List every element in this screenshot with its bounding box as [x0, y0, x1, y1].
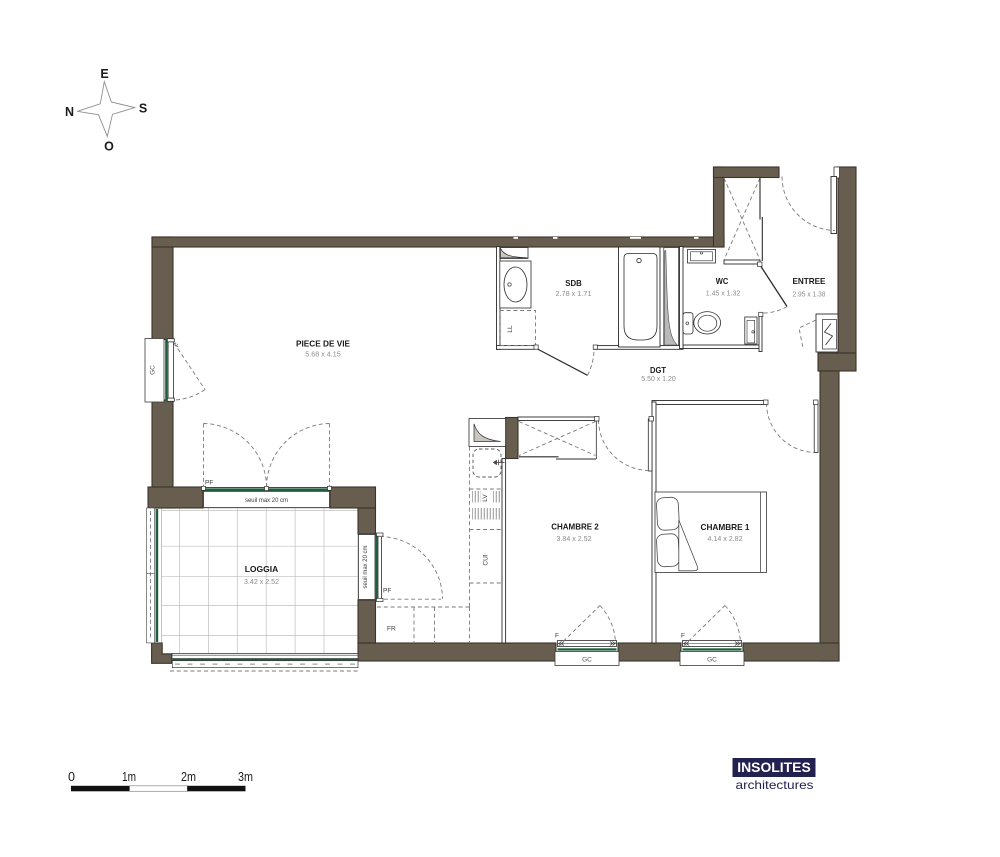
svg-text:INSOLITES: INSOLITES [737, 759, 811, 775]
svg-text:1.45 x 1.32: 1.45 x 1.32 [706, 291, 741, 298]
svg-text:3.42 x 2.52: 3.42 x 2.52 [244, 579, 279, 586]
svg-text:GC: GC [582, 657, 592, 664]
svg-text:PF: PF [205, 480, 213, 487]
svg-text:2.95 x 1.38: 2.95 x 1.38 [793, 292, 826, 299]
svg-text:CHAMBRE 2: CHAMBRE 2 [551, 522, 599, 532]
svg-text:GC: GC [707, 657, 717, 664]
svg-text:PF: PF [383, 588, 391, 595]
svg-text:FR: FR [387, 626, 396, 633]
svg-text:seuil max 20 cm: seuil max 20 cm [245, 497, 288, 504]
svg-text:LL: LL [507, 325, 514, 333]
svg-text:F: F [555, 633, 559, 640]
svg-text:3m: 3m [238, 770, 253, 784]
svg-text:3.84 x 2.52: 3.84 x 2.52 [557, 536, 592, 543]
svg-text:2.78 x 1.71: 2.78 x 1.71 [556, 291, 592, 298]
svg-text:O: O [104, 140, 114, 154]
svg-text:SDB: SDB [565, 278, 582, 288]
svg-text:4.14 x 2.82: 4.14 x 2.82 [708, 536, 743, 543]
svg-text:CHAMBRE 1: CHAMBRE 1 [701, 522, 750, 532]
svg-text:0: 0 [68, 770, 75, 784]
svg-text:1m: 1m [122, 770, 136, 784]
svg-text:E: E [100, 67, 108, 81]
svg-text:LV: LV [482, 494, 489, 502]
svg-text:LOGGIA: LOGGIA [245, 564, 279, 574]
svg-text:GC: GC [150, 365, 157, 375]
svg-text:seuil max 20 cm: seuil max 20 cm [362, 546, 369, 589]
svg-text:architectures: architectures [736, 778, 814, 792]
svg-text:DGT: DGT [650, 365, 667, 375]
svg-text:F: F [681, 633, 685, 640]
svg-text:WC: WC [716, 276, 729, 286]
svg-text:CUI: CUI [483, 554, 490, 565]
svg-text:2m: 2m [181, 770, 196, 784]
svg-text:5.68 x 4.15: 5.68 x 4.15 [305, 352, 341, 359]
svg-text:ENTREE: ENTREE [793, 276, 826, 286]
svg-text:N: N [65, 105, 74, 119]
svg-text:5.50 x 1.20: 5.50 x 1.20 [641, 376, 676, 383]
svg-text:S: S [139, 102, 147, 116]
svg-text:PIECE DE VIE: PIECE DE VIE [296, 339, 350, 349]
